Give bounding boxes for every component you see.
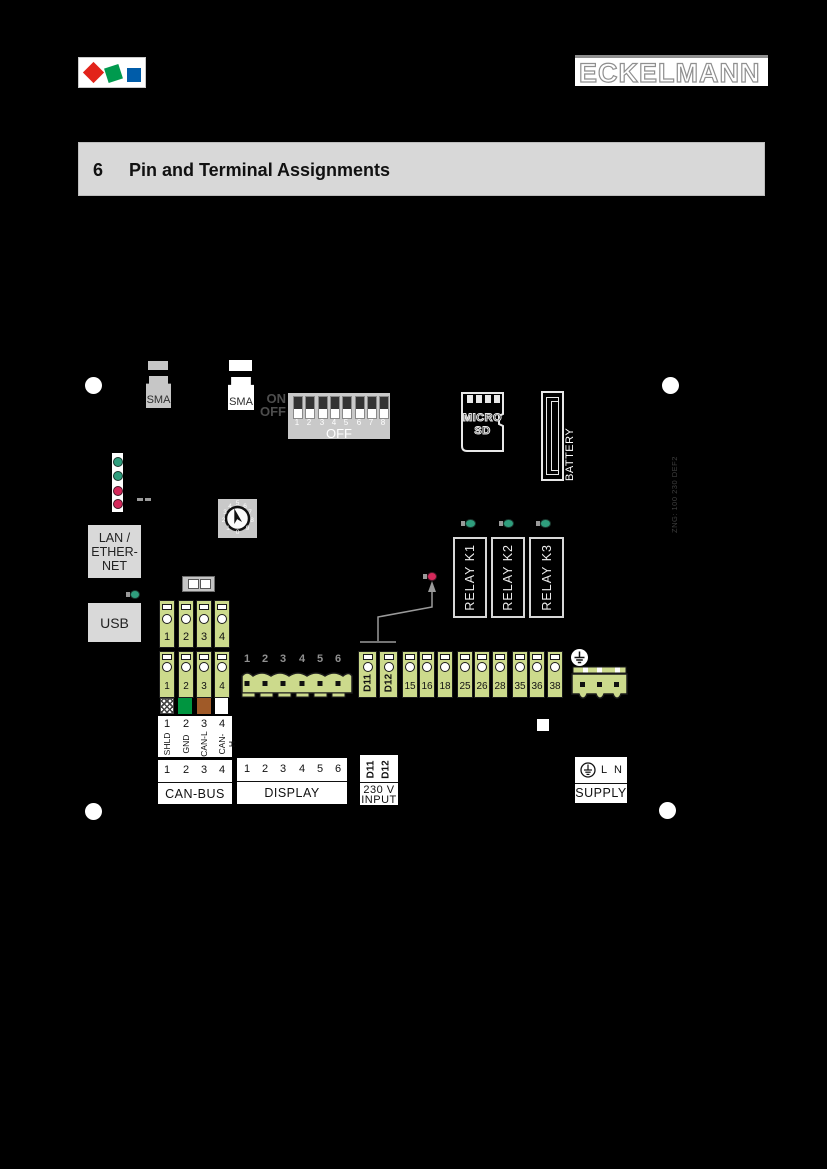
annotation-arrow-icon <box>358 578 440 646</box>
mounting-hole <box>85 803 102 820</box>
battery-holder-inner2 <box>551 401 559 471</box>
display-title: DISPLAY <box>237 786 347 800</box>
terminal-slot <box>162 604 172 610</box>
can-terminal-upper: 1 <box>159 600 175 648</box>
blue-square-icon <box>127 68 141 82</box>
can-terminal-lower: 1 <box>159 651 175 698</box>
terminal-screw <box>199 662 209 672</box>
terminal-label: D11 <box>362 665 373 701</box>
status-led-red-icon <box>113 499 123 509</box>
divider <box>360 782 398 783</box>
manual-page: ECKELMANN 6 Pin and Terminal Assignments… <box>0 0 827 1169</box>
rotary-digit: 1 <box>224 525 232 532</box>
supply-n: N <box>611 764 625 776</box>
terminal-number: 1 <box>160 631 174 643</box>
can-bus-pin: 4 <box>215 764 229 776</box>
dip-bottom-label: OFF <box>288 426 390 441</box>
can-pin: 1 <box>160 718 174 730</box>
terminal-number: 36 <box>530 681 544 692</box>
rotary-digit: 3 <box>221 509 229 516</box>
terminal-number: 4 <box>215 631 229 643</box>
terminal-screw <box>550 662 560 672</box>
can-signal-table: 1 2 3 4 SHLD GND CAN-L CAN-H <box>158 716 232 757</box>
terminal-18: 18 <box>437 651 453 698</box>
terminal-38: 38 <box>547 651 563 698</box>
display-pin-number: 5 <box>314 653 326 665</box>
lan-line3: NET <box>91 559 138 573</box>
can-wire-can-l <box>197 698 211 714</box>
can-bus-label-box: 1 2 3 4 CAN-BUS <box>158 760 232 804</box>
terminal-screw <box>440 662 450 672</box>
display-pin-number: 1 <box>241 653 253 665</box>
lan-line2: ETHER- <box>91 545 138 559</box>
relay-k1-led-icon <box>465 519 476 528</box>
terminal-screw <box>495 662 505 672</box>
can-signal: GND <box>181 731 191 757</box>
terminal-number: 3 <box>197 681 211 692</box>
rotary-digit: 9 <box>244 525 252 532</box>
relay-label: RELAY K1 <box>463 544 477 611</box>
lan-line1: LAN / <box>91 531 138 545</box>
terminal-slot <box>199 654 209 660</box>
sma-connector-1: SMA <box>146 376 171 408</box>
display-pin-number: 4 <box>296 653 308 665</box>
dip-switch-2 <box>305 396 315 419</box>
solder-pad <box>537 719 549 731</box>
can-signal: CAN-L <box>199 731 209 757</box>
sma2-label: SMA <box>229 396 253 408</box>
relay-k1: RELAY K1 <box>453 537 487 618</box>
relay-label: RELAY K2 <box>501 544 515 611</box>
brand-logo: ECKELMANN <box>575 55 768 86</box>
can-bus-pin: 2 <box>179 764 193 776</box>
terminal-number: 4 <box>215 681 229 692</box>
strip-dash <box>137 498 143 501</box>
terminal-number: 25 <box>458 681 472 692</box>
brand-name: ECKELMANN <box>579 58 761 89</box>
micro-sd-label-1: MICRO <box>459 412 506 424</box>
terminal-slot <box>460 654 470 660</box>
terminal-number: 16 <box>420 681 434 692</box>
section-number: 6 <box>93 160 103 181</box>
terminal-slot <box>550 654 560 660</box>
dip-switch-6 <box>355 396 365 419</box>
display-pin: 1 <box>240 763 254 775</box>
terminal-number: 26 <box>475 681 489 692</box>
input-pin: D12 <box>381 757 392 783</box>
terminal-36: 36 <box>529 651 545 698</box>
terminal-slot <box>363 654 373 660</box>
terminal-slot <box>440 654 450 660</box>
terminal-d11: D11 <box>358 651 377 698</box>
terminal-number: 15 <box>403 681 417 692</box>
terminal-slot <box>405 654 415 660</box>
micro-sd-label-2: SD <box>459 425 506 437</box>
terminal-screw <box>422 662 432 672</box>
terminal-screw <box>217 614 227 624</box>
terminal-slot <box>515 654 525 660</box>
input-pin: D11 <box>366 757 377 783</box>
terminal-number: 28 <box>493 681 507 692</box>
earth-icon <box>571 649 588 666</box>
terminal-35: 35 <box>512 651 528 698</box>
terminal-number: 2 <box>179 681 193 692</box>
dip-switch-7 <box>367 396 377 419</box>
can-bus-title: CAN-BUS <box>158 787 232 801</box>
dip-switch-4 <box>330 396 340 419</box>
can-signal: SHLD <box>162 731 172 757</box>
terminal-number: 3 <box>197 631 211 643</box>
dip-switch-block: 1 2 3 4 5 6 7 8 OFF <box>288 393 390 439</box>
rotary-digit: 7 <box>246 509 254 516</box>
terminal-slot <box>532 654 542 660</box>
strip-dash <box>145 498 151 501</box>
terminal-label: D12 <box>383 665 394 701</box>
board-code: ZNG: 100 230 DEF2 <box>668 448 681 533</box>
terminal-slot <box>477 654 487 660</box>
display-pin: 6 <box>331 763 345 775</box>
terminal-slot <box>217 654 227 660</box>
lan-ethernet-label: LAN / ETHER- NET <box>88 525 141 578</box>
display-pin: 3 <box>276 763 290 775</box>
mounting-hole <box>659 802 676 819</box>
terminal-number: 38 <box>548 681 562 692</box>
relay-label: RELAY K3 <box>540 544 554 611</box>
status-led-green-icon <box>113 471 123 481</box>
can-terminal-upper: 3 <box>196 600 212 648</box>
display-label-box: 1 2 3 4 5 6 DISPLAY <box>237 758 347 804</box>
terminal-slot <box>495 654 505 660</box>
rotary-digit: 0 <box>234 529 242 536</box>
terminal-screw <box>181 662 191 672</box>
status-led-strip <box>112 453 123 512</box>
terminal-screw <box>405 662 415 672</box>
relay-k3: RELAY K3 <box>529 537 564 618</box>
terminal-number: 18 <box>438 681 452 692</box>
dip-switch-8 <box>379 396 389 419</box>
terminal-slot <box>384 654 394 660</box>
display-pin: 5 <box>313 763 327 775</box>
terminal-slot <box>199 604 209 610</box>
sma2-tab <box>229 360 252 371</box>
supply-connector <box>571 666 628 702</box>
usb-text: USB <box>100 615 129 631</box>
terminal-slot <box>181 654 191 660</box>
status-led-green-icon <box>113 457 123 467</box>
can-pin: 3 <box>197 718 211 730</box>
can-signal: CAN-H <box>217 731 227 757</box>
terminal-25: 25 <box>457 651 473 698</box>
status-led-red-icon <box>113 486 123 496</box>
display-connector <box>241 667 353 700</box>
can-terminal-lower: 4 <box>214 651 230 698</box>
rotary-digit: 2 <box>220 517 228 524</box>
relay-k3-led-icon <box>540 519 551 528</box>
terminal-screw <box>515 662 525 672</box>
rotary-address-switch: 5 4 6 3 7 2 8 1 9 0 <box>218 499 257 538</box>
terminal-screw <box>162 662 172 672</box>
relay-k2: RELAY K2 <box>491 537 525 618</box>
input-230v-label-box: D11 D12 230 V INPUT <box>360 755 398 805</box>
display-pin: 2 <box>258 763 272 775</box>
terminal-screw <box>181 614 191 624</box>
section-title-bar: 6 Pin and Terminal Assignments <box>78 142 765 196</box>
company-logo <box>78 57 146 88</box>
can-terminal-lower: 2 <box>178 651 194 698</box>
green-square-icon <box>104 64 123 83</box>
micro-sd-slot: MICRO SD <box>459 391 506 453</box>
terminal-number: 35 <box>513 681 527 692</box>
supply-label-box: L N SUPPLY <box>575 757 627 803</box>
terminal-screw <box>199 614 209 624</box>
terminal-screw <box>217 662 227 672</box>
terminal-26: 26 <box>474 651 490 698</box>
terminal-screw <box>532 662 542 672</box>
dip-switch-1 <box>293 396 303 419</box>
terminal-slot <box>162 654 172 660</box>
terminal-15: 15 <box>402 651 418 698</box>
divider <box>575 783 627 784</box>
red-diamond-icon <box>83 62 104 83</box>
can-bus-pin: 1 <box>160 764 174 776</box>
sma1-tab <box>148 361 168 370</box>
input-title-2: INPUT <box>360 794 398 806</box>
relay-k2-led-icon <box>503 519 514 528</box>
dip-off-label: OFF <box>256 406 286 418</box>
can-wire-gnd <box>178 698 192 714</box>
mounting-hole <box>85 377 102 394</box>
divider <box>158 782 232 783</box>
terminal-d12: D12 <box>379 651 398 698</box>
battery-label: BATTERY <box>563 393 577 481</box>
display-pin-number: 6 <box>332 653 344 665</box>
earth-icon <box>580 762 596 778</box>
terminal-screw <box>162 614 172 624</box>
terminal-number: 1 <box>160 681 174 692</box>
display-pin-number: 3 <box>277 653 289 665</box>
can-termination-jumper <box>182 576 215 592</box>
can-terminal-lower: 3 <box>196 651 212 698</box>
terminal-number: 2 <box>179 631 193 643</box>
page-title: Pin and Terminal Assignments <box>129 160 390 181</box>
terminal-16: 16 <box>419 651 435 698</box>
dip-switch-3 <box>318 396 328 419</box>
rotary-digit: 8 <box>248 517 256 524</box>
dip-switch-5 <box>342 396 352 419</box>
terminal-screw <box>477 662 487 672</box>
supply-title: SUPPLY <box>575 786 627 800</box>
jumper-pin <box>188 579 199 589</box>
divider <box>237 781 347 782</box>
usb-label: USB <box>88 603 141 642</box>
can-wire-shield <box>160 698 174 714</box>
display-pin-number: 2 <box>259 653 271 665</box>
terminal-slot <box>422 654 432 660</box>
can-terminal-upper: 4 <box>214 600 230 648</box>
terminal-screw <box>460 662 470 672</box>
sma-connector-2: SMA <box>228 377 254 410</box>
can-pin: 2 <box>179 718 193 730</box>
display-pin: 4 <box>295 763 309 775</box>
usb-led-icon <box>130 590 140 599</box>
can-terminal-upper: 2 <box>178 600 194 648</box>
mounting-hole <box>662 377 679 394</box>
terminal-slot <box>217 604 227 610</box>
can-wire-can-h <box>215 698 228 714</box>
terminal-slot <box>181 604 191 610</box>
jumper-pin <box>200 579 211 589</box>
supply-l: L <box>597 764 611 776</box>
terminal-28: 28 <box>492 651 508 698</box>
sma1-label: SMA <box>147 394 171 406</box>
can-bus-pin: 3 <box>197 764 211 776</box>
earth-point <box>571 649 588 666</box>
can-pin: 4 <box>215 718 229 730</box>
